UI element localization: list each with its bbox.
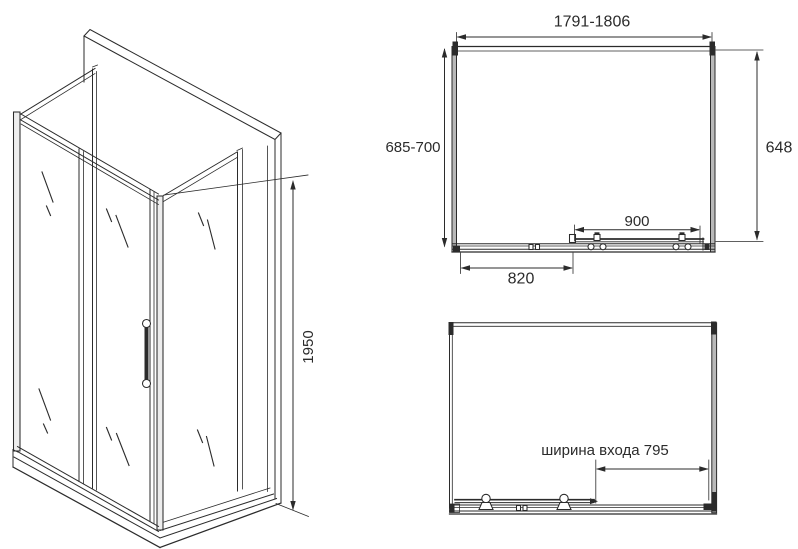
arrow-left-icon [596,466,606,472]
depth-dimension-label: 685-700 [385,139,440,156]
arrow-left-icon [461,265,471,271]
rail-end-block-left [453,246,460,253]
glass-reflection-marks [39,172,215,466]
side-dimension: 648 [716,50,792,242]
arrow-down-icon [442,238,447,248]
arrow-up-icon [290,180,295,190]
arrow-left-icon [575,227,585,233]
plan-view-bottom: ширина входа 795 [449,322,717,515]
roller-icon [588,232,606,250]
corner-bracket-bottom-right [712,492,717,511]
rail-guide-icon [536,245,540,250]
fixed-panel-dimension-label: 820 [508,271,535,288]
rail-end-block-left [450,504,455,513]
width-dimension: 1791-1806 [457,14,713,43]
wall-profile-left [452,47,457,253]
rail-guide-icon [517,506,521,511]
sliding-door-closed [570,232,710,250]
sliding-doors [14,112,164,532]
corner-bracket-top-right [711,322,717,335]
entrance-dimension: ширина входа 795 [541,442,709,503]
door-end-bracket [705,244,710,250]
wall-profile-right [711,47,716,253]
drawing-svg: 1950 [0,0,798,549]
arrow-up-icon [442,48,447,58]
roller-icon [479,494,493,509]
height-dimension: 1950 [164,175,317,517]
door-handle-icon [143,320,151,388]
arrow-down-icon [754,231,759,241]
fixed-panel-dimension: 820 [461,253,574,288]
roller-icon [557,494,571,509]
roller-icon [673,232,691,250]
arrow-right-icon [691,227,701,233]
corner-post [157,196,163,530]
plan-view-top: 1791-1806 685-700 648 900 [385,14,792,288]
arrow-right-icon [703,34,713,40]
width-dimension-label: 1791-1806 [554,14,631,31]
corner-bracket-top-right [710,42,716,56]
technical-drawing-sheet: 1950 [0,0,798,549]
enclosure-outline [452,42,715,253]
rail-guide-icon [529,245,533,250]
wall-profile-left [14,112,21,451]
wall-profile-right [712,323,717,513]
depth-dimension: 685-700 [385,48,447,248]
rail-guide-icon [523,506,527,511]
arrow-right-icon [699,466,709,472]
door-dimension-label: 900 [624,213,649,230]
arrow-left-icon [457,34,467,40]
arrow-down-icon [290,501,295,511]
isometric-view: 1950 [13,30,317,548]
arrow-right-icon [564,265,574,271]
entrance-dimension-label: ширина входа 795 [541,442,669,459]
shower-tray [13,450,281,548]
corner-bracket-top-left [449,322,454,335]
enclosure-outline [449,322,717,513]
side-dimension-label: 648 [766,140,793,157]
height-dimension-label: 1950 [300,330,317,363]
arrow-up-icon [754,51,759,61]
corner-bracket-top-left [453,42,459,56]
side-panel-left [20,65,98,490]
back-panel [84,30,281,503]
